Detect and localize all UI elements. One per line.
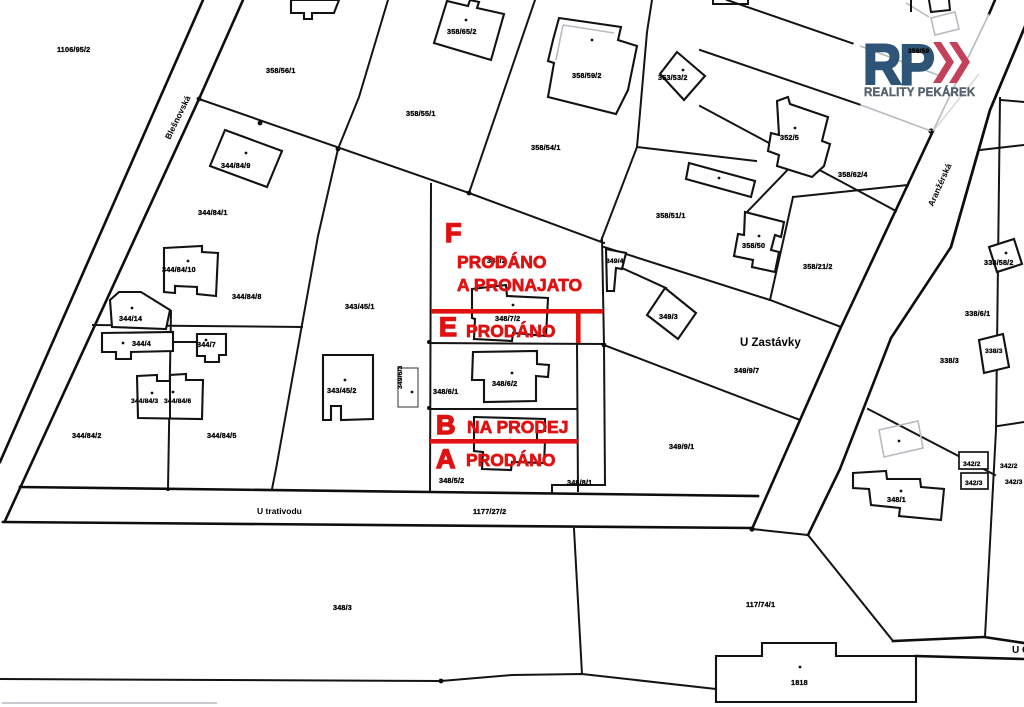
svg-text:U Ce: U Ce	[1012, 645, 1024, 656]
svg-text:358/59/2: 358/59/2	[572, 71, 602, 80]
svg-text:PRODÁNO: PRODÁNO	[457, 251, 546, 272]
svg-text:348/6/2: 348/6/2	[492, 379, 517, 388]
svg-text:117/74/1: 117/74/1	[746, 600, 775, 609]
svg-text:349/6/3: 349/6/3	[397, 366, 404, 389]
svg-text:344/84/3: 344/84/3	[131, 398, 158, 405]
svg-text:344/84/5: 344/84/5	[207, 431, 237, 440]
svg-text:344/7: 344/7	[197, 340, 216, 349]
svg-text:U Zastávky: U Zastávky	[740, 337, 801, 349]
svg-text:A PRONAJATO: A PRONAJATO	[457, 275, 582, 295]
svg-text:348/3: 348/3	[333, 603, 352, 612]
svg-text:A: A	[436, 444, 456, 474]
svg-text:1177/27/2: 1177/27/2	[473, 507, 506, 516]
svg-text:358/55/1: 358/55/1	[406, 109, 436, 118]
svg-text:342/2: 342/2	[963, 461, 981, 468]
svg-text:338/3: 338/3	[985, 348, 1003, 355]
svg-text:358/62/4: 358/62/4	[838, 170, 868, 179]
svg-text:349/9/7: 349/9/7	[734, 366, 759, 375]
svg-text:E: E	[439, 312, 457, 342]
svg-text:338/3: 338/3	[940, 356, 959, 365]
svg-text:348/1: 348/1	[887, 495, 906, 504]
svg-text:358/51/1: 358/51/1	[656, 211, 686, 220]
svg-text:344/84/2: 344/84/2	[72, 431, 102, 440]
svg-text:344/84/9: 344/84/9	[221, 161, 251, 170]
svg-text:REALITY PEKÁREK: REALITY PEKÁREK	[864, 86, 976, 99]
svg-text:358/65/2: 358/65/2	[447, 27, 477, 36]
svg-text:358/21/2: 358/21/2	[803, 262, 833, 271]
svg-text:353/53/2: 353/53/2	[658, 73, 688, 82]
svg-text:348/6/1: 348/6/1	[433, 387, 458, 396]
svg-text:344/84/10: 344/84/10	[162, 265, 196, 274]
svg-text:349/9/1: 349/9/1	[669, 442, 694, 451]
svg-text:344/84/1: 344/84/1	[198, 208, 228, 217]
svg-text:342/2: 342/2	[1000, 463, 1018, 470]
svg-text:342/3: 342/3	[965, 480, 983, 487]
svg-text:PRODÁNO: PRODÁNO	[466, 449, 555, 470]
svg-text:338/6/1: 338/6/1	[965, 309, 990, 318]
svg-text:342/3: 342/3	[1005, 479, 1023, 486]
svg-text:348/8/1: 348/8/1	[567, 478, 592, 487]
svg-text:B: B	[436, 410, 456, 440]
svg-text:343/45/2: 343/45/2	[327, 386, 357, 395]
svg-text:F: F	[445, 218, 462, 248]
svg-text:U trativodu: U trativodu	[257, 506, 302, 516]
svg-text:349/4: 349/4	[606, 258, 624, 265]
svg-text:358/50: 358/50	[742, 241, 765, 250]
svg-text:1818: 1818	[791, 678, 808, 687]
svg-text:344/14: 344/14	[119, 314, 142, 323]
svg-text:343/45/1: 343/45/1	[345, 302, 375, 311]
svg-text:348/5/2: 348/5/2	[439, 476, 464, 485]
svg-text:344/84/6: 344/84/6	[164, 398, 191, 405]
svg-text:338/58/2: 338/58/2	[984, 258, 1014, 267]
svg-text:358/54/1: 358/54/1	[531, 143, 561, 152]
svg-text:344/84/8: 344/84/8	[232, 292, 262, 301]
svg-text:358/59: 358/59	[908, 48, 930, 55]
svg-text:NA PRODEJ: NA PRODEJ	[467, 417, 568, 437]
svg-text:1106/95/2: 1106/95/2	[57, 45, 90, 54]
svg-text:PRODÁNO: PRODÁNO	[466, 320, 555, 341]
svg-text:352/5: 352/5	[780, 133, 799, 142]
svg-text:344/4: 344/4	[132, 339, 151, 348]
svg-text:358/56/1: 358/56/1	[266, 66, 296, 75]
svg-text:349/3: 349/3	[659, 312, 678, 321]
